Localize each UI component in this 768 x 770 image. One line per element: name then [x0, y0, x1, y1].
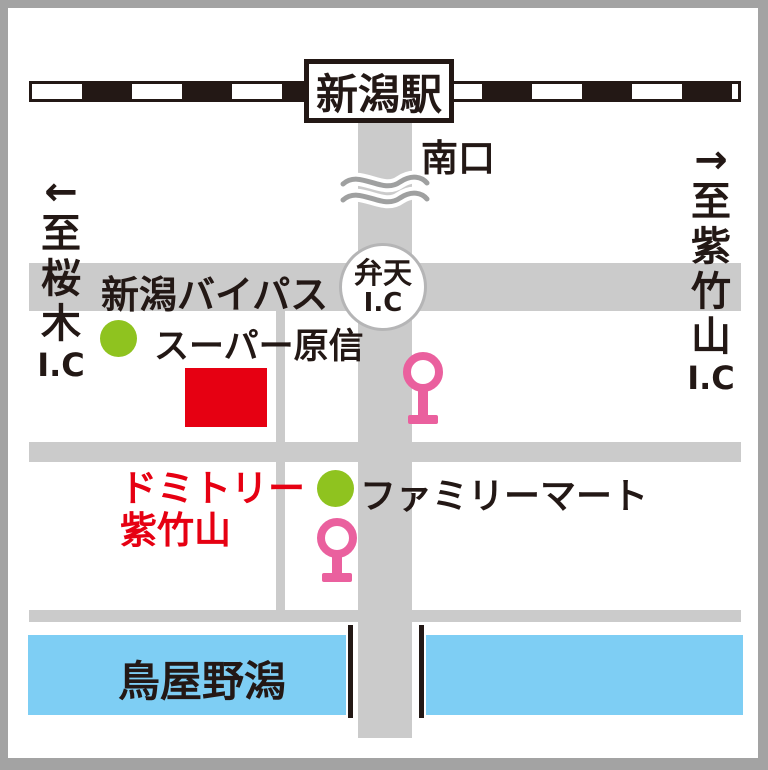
traffic-light-base: [408, 415, 438, 424]
traffic-light-base: [322, 573, 352, 582]
benten-ic-name: 弁天: [354, 259, 412, 288]
direction-char: 竹: [691, 270, 731, 315]
bypass-road-label: 新潟バイパス: [101, 264, 328, 319]
convenience-store-label: ファミリーマート: [360, 467, 648, 519]
south-exit-label: 南口: [421, 128, 495, 182]
station-main-road: [358, 122, 412, 738]
direction-char: 山: [691, 315, 731, 360]
destination-building-marker: [185, 368, 267, 427]
traffic-light-icon: [317, 518, 357, 583]
direction-label-shichikuyama-ic: → 至 紫 竹 山 I.C: [679, 140, 743, 396]
bridge-mark-left: [348, 625, 353, 718]
direction-ic-suffix: I.C: [37, 347, 85, 383]
access-map: 新潟駅 弁天 I.C 南口 新潟バイパス スーパー原信 ファミリーマート ドミト…: [0, 0, 768, 770]
destination-label-line2: 紫竹山: [120, 510, 305, 552]
supermarket-dot-icon: [100, 320, 137, 357]
direction-char: 桜: [41, 257, 81, 302]
road-break-wavy-icon: [340, 170, 430, 214]
lagoon-label: 鳥屋野潟: [118, 648, 286, 709]
right-arrow-icon: →: [694, 140, 728, 180]
lagoon-water-right: [426, 635, 743, 715]
traffic-light-icon: [403, 352, 443, 424]
destination-label: ドミトリー 紫竹山: [120, 468, 305, 552]
destination-label-line1: ドミトリー: [120, 468, 305, 510]
traffic-light-head: [403, 352, 443, 392]
left-arrow-icon: ←: [44, 172, 78, 212]
bridge-mark-right: [419, 625, 424, 718]
direction-ic-suffix: I.C: [687, 360, 735, 396]
direction-char: 至: [41, 212, 81, 257]
benten-ic-suffix: I.C: [364, 290, 403, 316]
station-name: 新潟駅: [316, 61, 442, 122]
direction-char: 紫: [691, 225, 731, 270]
supermarket-label: スーパー原信: [154, 318, 364, 369]
direction-char: 木: [41, 302, 81, 347]
convenience-store-dot-icon: [317, 470, 354, 507]
direction-char: 至: [691, 180, 731, 225]
direction-label-sakuragi-ic: ← 至 桜 木 I.C: [29, 172, 93, 383]
traffic-light-head: [317, 518, 357, 558]
station-box: 新潟駅: [304, 59, 454, 123]
